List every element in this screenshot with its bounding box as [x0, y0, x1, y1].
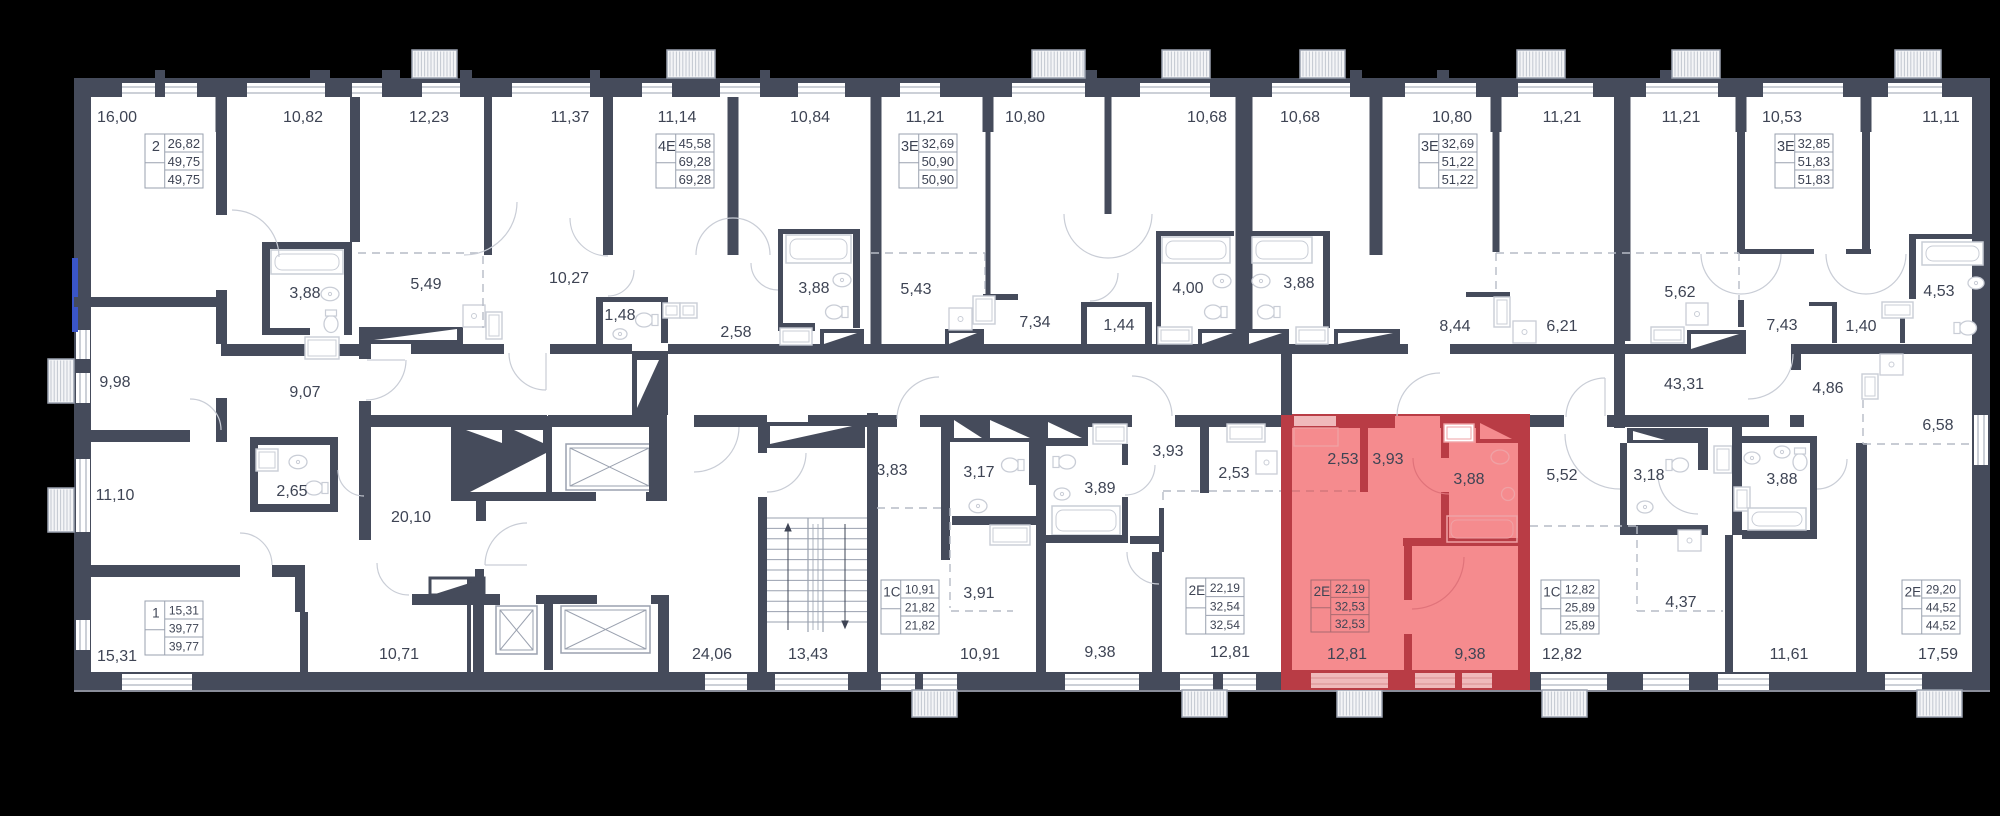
svg-text:32,53: 32,53: [1335, 617, 1365, 631]
svg-text:9,38: 9,38: [1454, 646, 1485, 663]
svg-text:29,20: 29,20: [1926, 583, 1956, 597]
svg-text:32,69: 32,69: [922, 136, 955, 151]
svg-text:11,21: 11,21: [906, 109, 945, 126]
svg-text:10,91: 10,91: [905, 583, 935, 597]
svg-text:8,44: 8,44: [1439, 318, 1470, 335]
svg-text:3Е: 3Е: [1777, 139, 1795, 155]
svg-text:3,88: 3,88: [1283, 275, 1314, 292]
svg-text:49,75: 49,75: [168, 172, 201, 187]
svg-text:32,54: 32,54: [1210, 600, 1240, 614]
svg-text:51,83: 51,83: [1798, 172, 1831, 187]
svg-text:2,53: 2,53: [1218, 465, 1249, 482]
svg-text:3,93: 3,93: [1152, 443, 1183, 460]
svg-text:3,89: 3,89: [1084, 480, 1115, 497]
svg-text:12,81: 12,81: [1327, 646, 1367, 663]
svg-text:11,11: 11,11: [1922, 109, 1960, 126]
svg-text:6,21: 6,21: [1546, 318, 1577, 335]
svg-text:5,49: 5,49: [410, 276, 441, 293]
svg-text:10,80: 10,80: [1432, 109, 1472, 126]
svg-text:1: 1: [152, 605, 160, 620]
svg-text:26,82: 26,82: [168, 136, 201, 151]
svg-text:4Е: 4Е: [658, 139, 676, 155]
svg-text:5,52: 5,52: [1546, 467, 1577, 484]
svg-text:5,43: 5,43: [900, 281, 931, 298]
svg-text:7,43: 7,43: [1766, 317, 1797, 334]
svg-text:4,00: 4,00: [1172, 280, 1203, 297]
svg-text:11,10: 11,10: [96, 487, 135, 504]
svg-text:10,53: 10,53: [1762, 109, 1802, 126]
svg-text:3,17: 3,17: [963, 464, 994, 481]
svg-text:2,53: 2,53: [1327, 451, 1358, 468]
svg-text:11,37: 11,37: [551, 109, 590, 126]
svg-text:4,37: 4,37: [1665, 594, 1696, 611]
svg-text:1,48: 1,48: [604, 307, 635, 324]
svg-text:12,81: 12,81: [1210, 644, 1250, 661]
svg-text:11,21: 11,21: [1543, 109, 1582, 126]
svg-text:15,31: 15,31: [97, 648, 137, 665]
svg-text:9,07: 9,07: [289, 384, 320, 401]
svg-text:10,27: 10,27: [549, 270, 589, 287]
svg-text:12,82: 12,82: [1542, 646, 1582, 663]
svg-text:49,75: 49,75: [168, 154, 201, 169]
svg-text:21,82: 21,82: [905, 601, 935, 615]
svg-text:13,43: 13,43: [788, 646, 828, 663]
svg-text:2Е: 2Е: [1905, 584, 1922, 599]
svg-text:39,77: 39,77: [169, 622, 199, 636]
svg-text:10,80: 10,80: [1005, 109, 1045, 126]
svg-text:24,06: 24,06: [692, 646, 732, 663]
svg-text:3Е: 3Е: [901, 139, 919, 155]
svg-text:10,68: 10,68: [1280, 109, 1320, 126]
svg-text:6,58: 6,58: [1922, 417, 1953, 434]
svg-text:9,98: 9,98: [99, 374, 130, 391]
svg-text:25,89: 25,89: [1565, 601, 1595, 615]
svg-text:50,90: 50,90: [922, 172, 955, 187]
svg-text:10,91: 10,91: [960, 646, 1000, 663]
svg-text:3,83: 3,83: [876, 462, 907, 479]
svg-text:32,69: 32,69: [1442, 136, 1475, 151]
svg-text:1,44: 1,44: [1103, 317, 1134, 334]
svg-text:3,88: 3,88: [1766, 471, 1797, 488]
svg-text:21,82: 21,82: [905, 619, 935, 633]
svg-text:3Е: 3Е: [1421, 139, 1439, 155]
svg-text:22,19: 22,19: [1335, 582, 1365, 596]
svg-text:44,52: 44,52: [1926, 601, 1956, 615]
svg-text:9,38: 9,38: [1084, 644, 1115, 661]
svg-text:3,88: 3,88: [798, 280, 829, 297]
svg-text:2Е: 2Е: [1189, 583, 1206, 598]
svg-text:44,52: 44,52: [1926, 619, 1956, 633]
svg-text:12,82: 12,82: [1565, 583, 1595, 597]
svg-text:32,53: 32,53: [1335, 600, 1365, 614]
svg-text:3,88: 3,88: [289, 285, 320, 302]
svg-text:51,22: 51,22: [1442, 154, 1475, 169]
svg-text:4,86: 4,86: [1812, 380, 1843, 397]
svg-text:3,93: 3,93: [1372, 451, 1403, 468]
svg-text:43,31: 43,31: [1664, 376, 1704, 393]
svg-text:51,83: 51,83: [1798, 154, 1831, 169]
svg-text:5,62: 5,62: [1664, 284, 1695, 301]
svg-text:3,18: 3,18: [1633, 467, 1664, 484]
svg-text:10,84: 10,84: [790, 109, 830, 126]
svg-text:2,58: 2,58: [720, 324, 751, 341]
svg-text:11,21: 11,21: [1662, 109, 1701, 126]
svg-text:3,91: 3,91: [963, 585, 994, 602]
svg-text:1С: 1С: [1543, 584, 1561, 599]
svg-text:50,90: 50,90: [922, 154, 955, 169]
svg-text:7,34: 7,34: [1019, 314, 1050, 331]
svg-text:15,31: 15,31: [169, 604, 199, 618]
svg-text:20,10: 20,10: [391, 509, 431, 526]
svg-text:69,28: 69,28: [679, 172, 712, 187]
svg-text:2,65: 2,65: [276, 483, 307, 500]
svg-text:1,40: 1,40: [1845, 318, 1876, 335]
svg-text:17,59: 17,59: [1918, 646, 1958, 663]
svg-text:45,58: 45,58: [679, 136, 712, 151]
svg-text:51,22: 51,22: [1442, 172, 1475, 187]
svg-text:32,54: 32,54: [1210, 618, 1240, 632]
svg-text:2Е: 2Е: [1314, 584, 1331, 599]
svg-text:4,53: 4,53: [1923, 283, 1954, 300]
svg-text:22,19: 22,19: [1210, 581, 1240, 595]
svg-text:10,82: 10,82: [283, 109, 323, 126]
svg-text:39,77: 39,77: [169, 640, 199, 654]
svg-text:11,61: 11,61: [1770, 646, 1809, 663]
svg-text:10,68: 10,68: [1187, 109, 1227, 126]
svg-text:32,85: 32,85: [1798, 136, 1831, 151]
svg-text:2: 2: [152, 139, 160, 155]
svg-text:25,89: 25,89: [1565, 619, 1595, 633]
svg-text:11,14: 11,14: [658, 109, 697, 126]
svg-text:69,28: 69,28: [679, 154, 712, 169]
svg-text:12,23: 12,23: [409, 109, 449, 126]
svg-text:1С: 1С: [883, 584, 901, 599]
svg-text:3,88: 3,88: [1453, 471, 1484, 488]
svg-text:16,00: 16,00: [97, 109, 137, 126]
svg-text:10,71: 10,71: [379, 646, 419, 663]
